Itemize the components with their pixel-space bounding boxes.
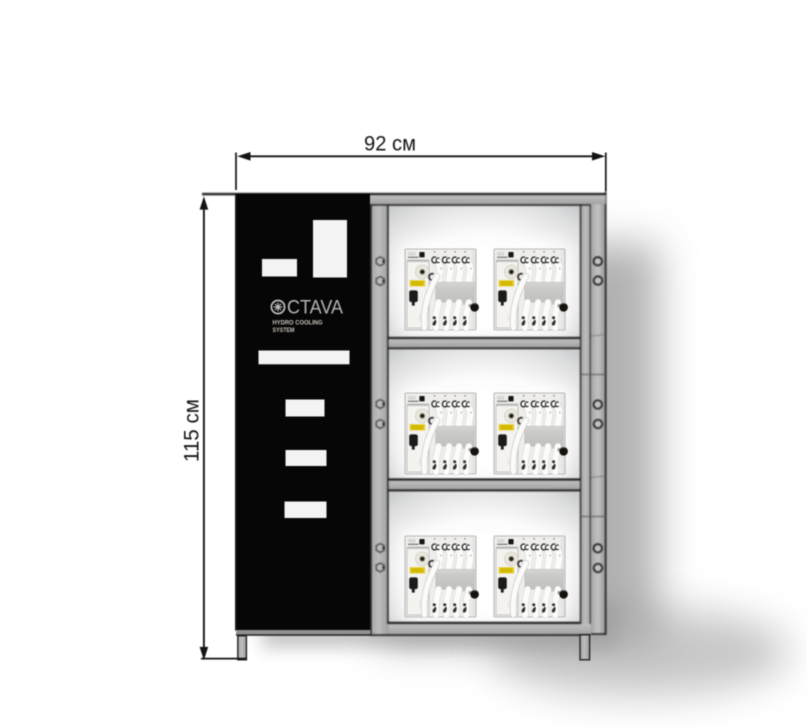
svg-text:SYSTEM: SYSTEM (273, 327, 295, 334)
svg-text:HYDRO COOLING: HYDRO COOLING (273, 320, 323, 327)
svg-text:115 см: 115 см (180, 399, 204, 462)
svg-text:92 см: 92 см (364, 132, 416, 156)
svg-text:CTAVA: CTAVA (287, 297, 343, 319)
